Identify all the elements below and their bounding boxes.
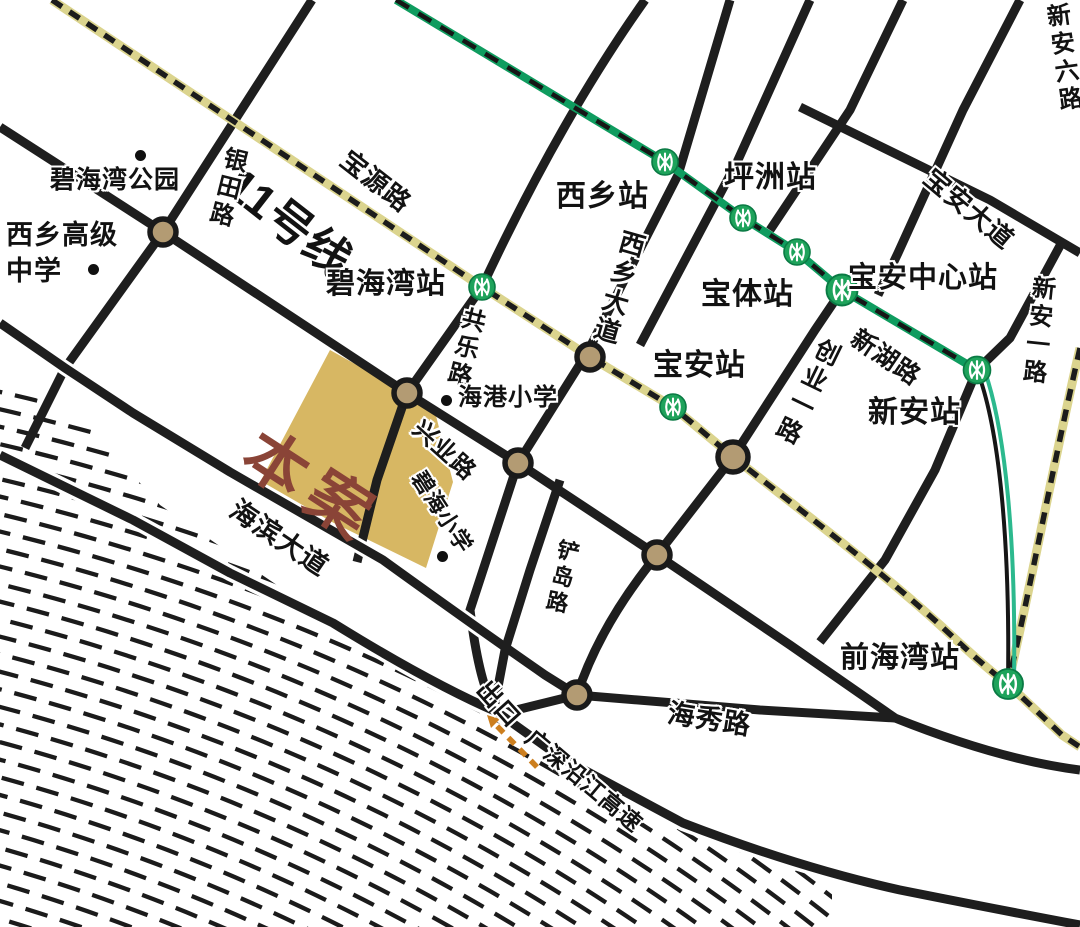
- intersection-dot: [564, 682, 590, 708]
- label-station-baoan-center: 宝安中心站: [848, 264, 998, 293]
- metro-area-map: 11号线 宝源路 银田路 碧海湾公园 西乡高级 中学 碧海湾站 共乐路 海港小学…: [0, 0, 1080, 927]
- school-dot: [88, 264, 99, 275]
- metro-station-icon-xixiang: [652, 149, 678, 175]
- label-place-xixiang-school-2: 中学: [6, 258, 62, 285]
- metro-station-icon-baoti: [784, 239, 810, 265]
- map-canvas: [0, 0, 1080, 927]
- metro-station-icon-bihaiwan: [469, 274, 495, 300]
- label-place-xixiang-school-1: 西乡高级: [6, 222, 118, 249]
- intersection-dot: [577, 344, 603, 370]
- label-station-bihaiwan: 碧海湾站: [326, 270, 446, 299]
- intersection-dot: [718, 442, 748, 472]
- metro-station-icon-xinan: [964, 357, 991, 384]
- metro-line-green: [396, 0, 1014, 684]
- metro-station-icon-baoan: [660, 394, 686, 420]
- metro-green-curve-black: [977, 370, 1008, 684]
- intersection-dot: [150, 219, 176, 245]
- intersection-dot: [644, 542, 670, 568]
- intersection-dot: [394, 380, 420, 406]
- label-station-baoan: 宝安站: [653, 351, 746, 381]
- label-station-pingzhou: 坪洲站: [724, 163, 817, 193]
- park-dot: [135, 150, 146, 161]
- label-station-qianhaiwan: 前海湾站: [840, 644, 960, 673]
- label-place-haigang-school: 海港小学: [458, 386, 558, 410]
- metro-station-icon-qianhaiwan: [993, 669, 1023, 699]
- haigang-dot: [441, 395, 452, 406]
- intersection-dot: [505, 450, 531, 476]
- label-station-xinan: 新安站: [868, 398, 961, 428]
- label-place-bihaiwan-park: 碧海湾公园: [50, 168, 180, 193]
- label-station-baoti: 宝体站: [701, 280, 794, 310]
- label-station-xixiang: 西乡站: [556, 182, 649, 212]
- metro-station-icon-pingzhou: [730, 205, 756, 231]
- metro-line-11: [52, 0, 1080, 747]
- bihai-school-dot: [437, 551, 448, 562]
